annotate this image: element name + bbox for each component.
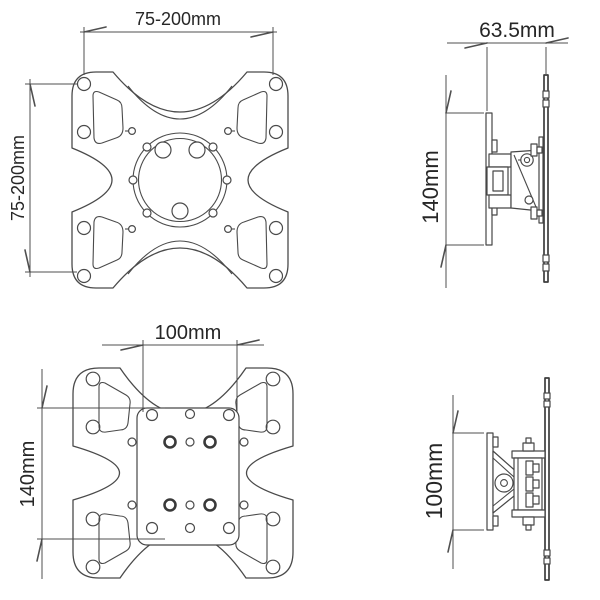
vesa-hole xyxy=(205,500,216,511)
ring-small-hole xyxy=(129,176,137,184)
plate-hole xyxy=(224,410,235,421)
slot-hole xyxy=(240,501,248,509)
bracket-box xyxy=(512,438,545,530)
slot-hole xyxy=(240,438,248,446)
hook-tab xyxy=(493,516,498,526)
dim-label-width: 75-200mm xyxy=(135,9,221,29)
bolt xyxy=(531,207,537,219)
slot-hole xyxy=(128,438,136,446)
dim-label-height: 75-200mm xyxy=(8,135,28,221)
bolt xyxy=(531,144,537,156)
hook-tab xyxy=(492,140,497,152)
mounting-hole xyxy=(86,372,100,386)
bolt xyxy=(533,496,539,504)
hook-tab xyxy=(493,437,498,447)
slot-hole xyxy=(129,128,136,135)
slot-hole xyxy=(128,501,136,509)
bolt xyxy=(526,477,533,491)
bolt xyxy=(537,210,542,216)
ring-bolt-hole xyxy=(155,142,171,158)
vesa-hole xyxy=(165,437,176,448)
bolt xyxy=(533,464,539,472)
plate-hole xyxy=(186,501,194,509)
dim-label-height: 140mm xyxy=(17,441,39,508)
mounting-hole xyxy=(78,78,91,91)
tilt-clamp xyxy=(487,154,511,208)
bolt xyxy=(523,517,534,525)
ring-small-hole xyxy=(143,209,151,217)
tv-wall-mount-drawing: 75-200mm 75-200mm xyxy=(0,0,600,600)
plate-hole xyxy=(147,523,158,534)
plate-hole xyxy=(224,523,235,534)
dimension-height: 75-200mm xyxy=(8,79,77,277)
bolt xyxy=(523,443,534,451)
plate-outline xyxy=(72,72,288,288)
bolt xyxy=(526,461,533,475)
ring-bolt-hole xyxy=(189,142,205,158)
dim-label-height: 140mm xyxy=(418,150,443,223)
plate-hole xyxy=(147,410,158,421)
dimension-width: 75-200mm xyxy=(80,9,277,75)
ring-small-hole xyxy=(209,209,217,217)
plate-hole xyxy=(186,438,194,446)
bolt xyxy=(533,480,539,488)
bolt xyxy=(526,525,531,530)
technical-drawing-page: 75-200mm 75-200mm xyxy=(0,0,600,600)
dimension-depth: 63.5mm xyxy=(447,19,568,111)
dim-label-depth: 63.5mm xyxy=(479,19,555,42)
dim-label-height: 100mm xyxy=(421,443,447,520)
wall-plate-profile xyxy=(544,378,550,580)
pivot-stub xyxy=(525,196,533,204)
plate-hole xyxy=(186,524,195,533)
center-square-plate xyxy=(137,408,239,545)
pivot-joint xyxy=(495,474,513,492)
dimension-height: 100mm xyxy=(421,395,484,569)
view-bracket-side: 63.5mm 140mm xyxy=(418,19,568,288)
vesa-hole xyxy=(205,437,216,448)
wall-plate-profile xyxy=(543,75,549,282)
mounting-hole xyxy=(78,126,91,139)
bolt xyxy=(537,147,542,153)
bolt xyxy=(526,438,531,443)
ring-small-hole xyxy=(223,176,231,184)
plate-hole xyxy=(186,410,195,419)
dim-label-width: 100mm xyxy=(155,322,222,344)
mounting-hole xyxy=(86,420,100,434)
ring-small-hole xyxy=(209,143,217,151)
view-vesa-plate-front: 75-200mm 75-200mm xyxy=(8,9,288,288)
vesa-hole xyxy=(165,500,176,511)
ring-bolt-hole xyxy=(172,203,188,219)
view-vesa-plate-100-front: 100mm 140mm xyxy=(17,322,293,579)
ring-small-hole xyxy=(143,143,151,151)
dimension-height: 140mm xyxy=(418,75,484,288)
view-bracket-side-folded: 100mm xyxy=(421,378,550,580)
bolt xyxy=(526,493,533,507)
